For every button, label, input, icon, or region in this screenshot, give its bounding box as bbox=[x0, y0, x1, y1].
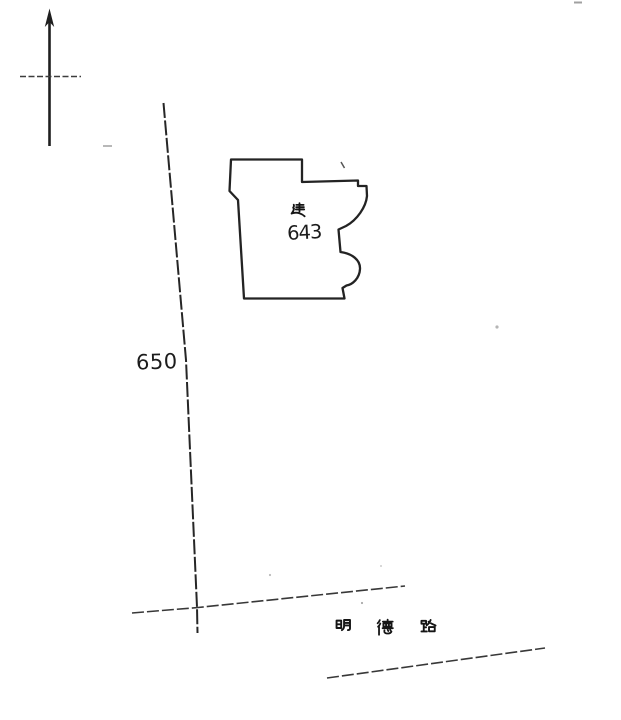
speckle-dot-mid bbox=[269, 574, 271, 576]
building-number-643: 643 bbox=[286, 220, 321, 245]
speckle-dot bbox=[495, 325, 498, 328]
speckle-dot-road bbox=[361, 602, 363, 604]
road-edge-line-upper bbox=[132, 586, 405, 613]
road-name: 明 德 路 bbox=[334, 617, 439, 641]
speckle-dot-faint bbox=[380, 565, 382, 567]
road-char-ming: 明 bbox=[334, 617, 353, 639]
road-edge-line-lower bbox=[327, 648, 545, 678]
north-arrow-icon bbox=[20, 9, 81, 147]
speckle-tick bbox=[341, 162, 345, 168]
cadastral-map-page: 650 建 643 明 德 路 bbox=[0, 0, 621, 720]
parcel-number-650: 650 bbox=[136, 349, 178, 374]
scan-speckles bbox=[103, 3, 582, 605]
map-canvas: 650 建 643 明 德 路 bbox=[0, 0, 621, 720]
road-char-lu: 路 bbox=[420, 619, 439, 641]
road-char-de: 德 bbox=[376, 619, 395, 641]
